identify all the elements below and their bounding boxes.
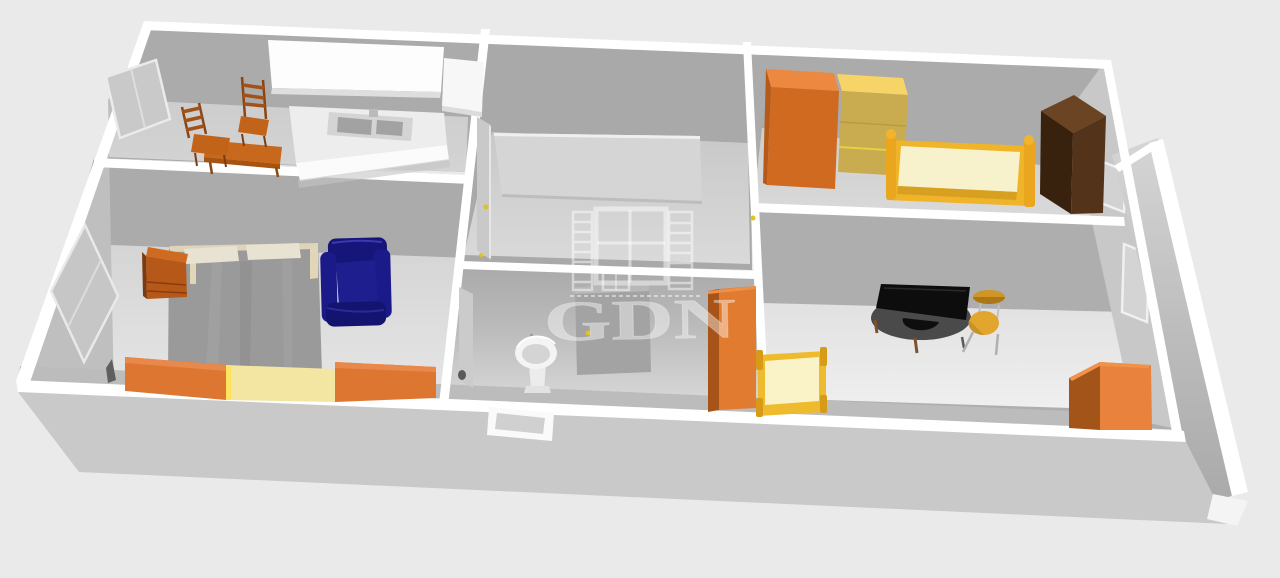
svg-text:GDN: GDN bbox=[543, 287, 736, 353]
